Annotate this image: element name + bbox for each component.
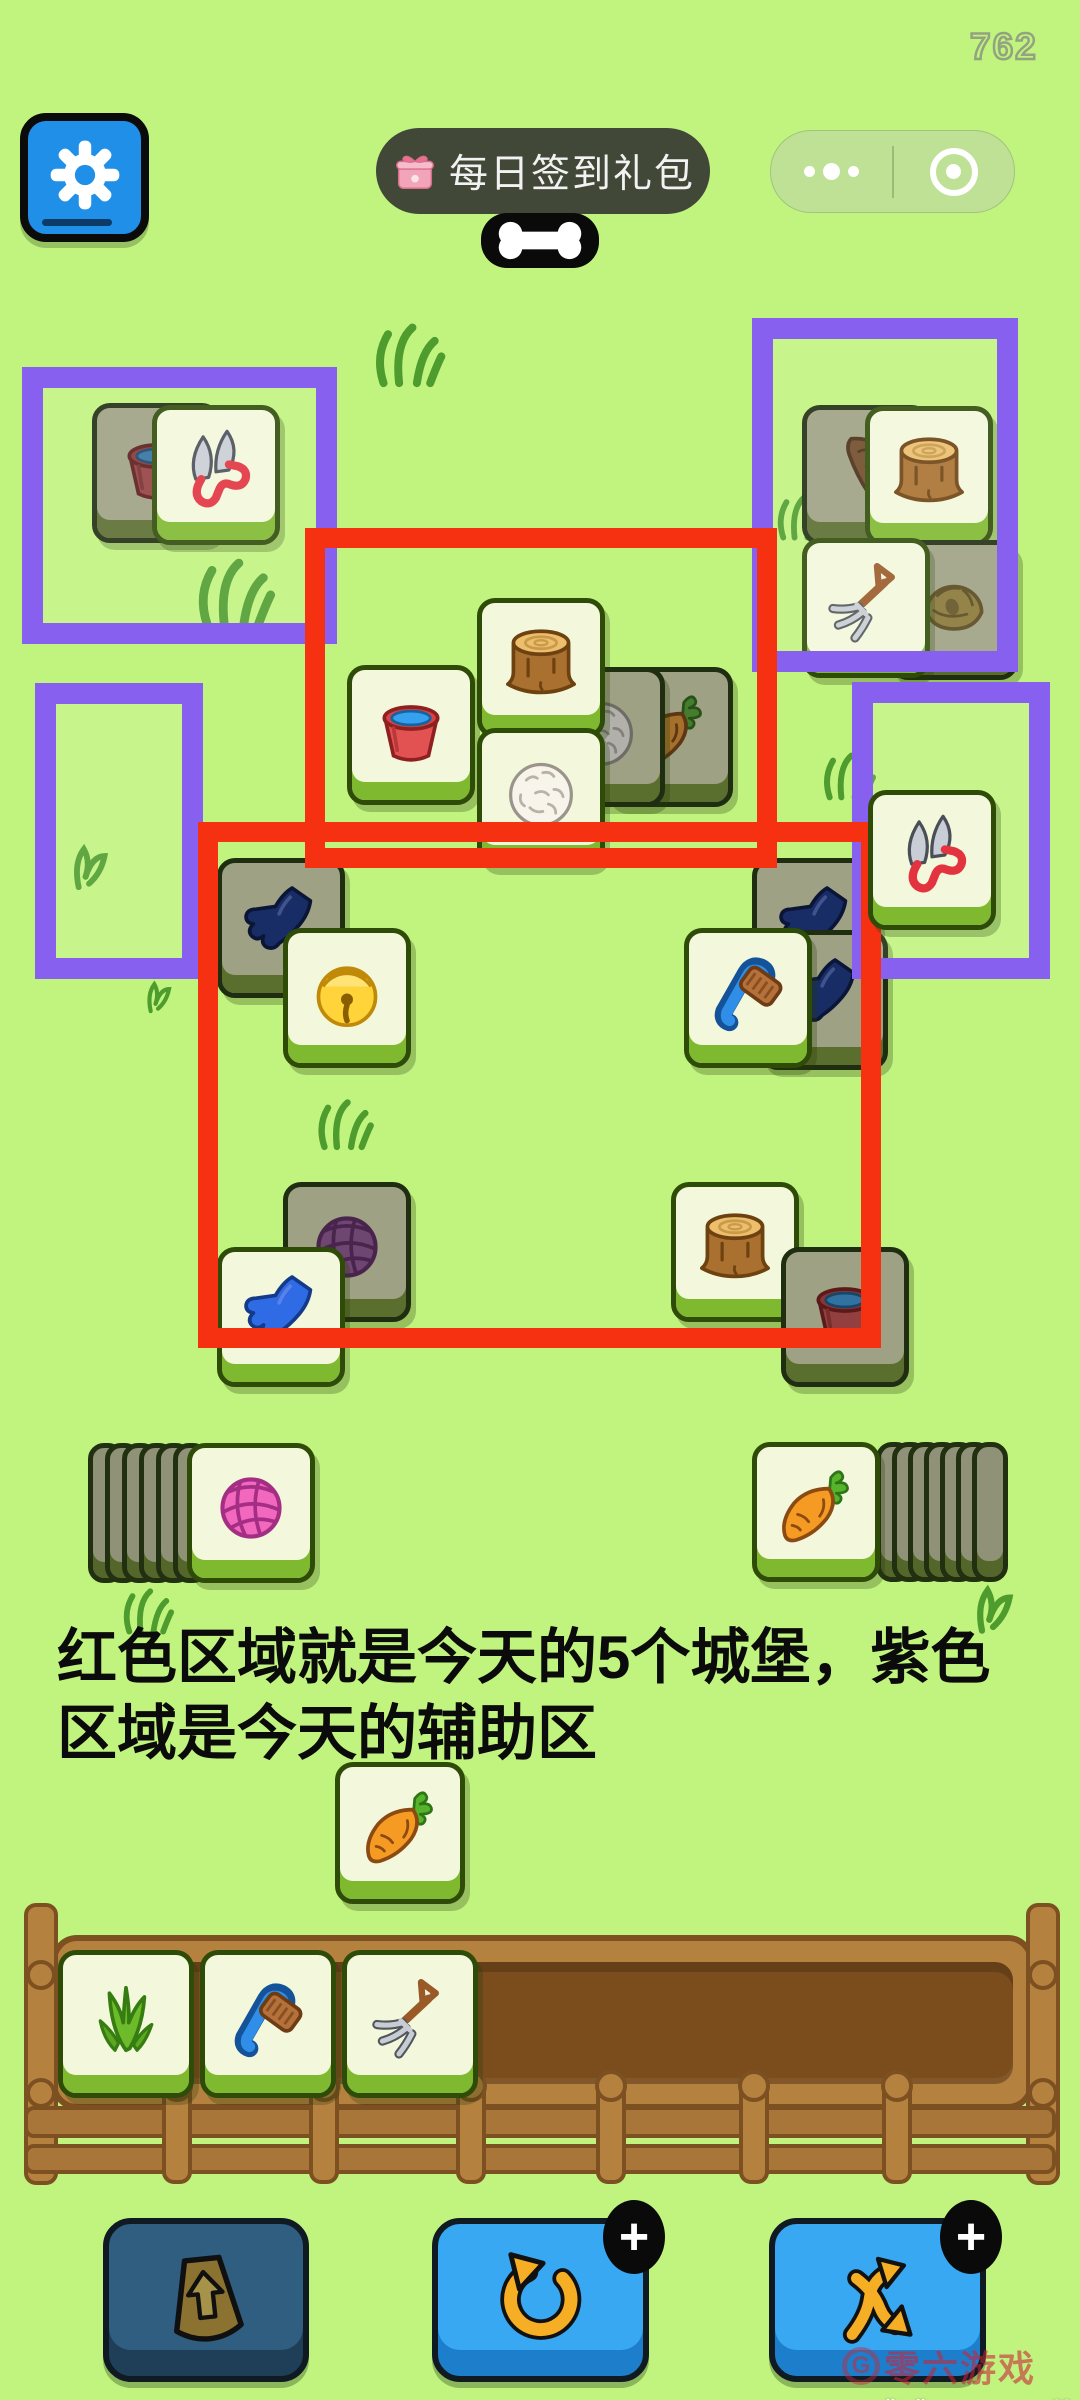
tile-yarn-pink[interactable] — [187, 1443, 315, 1583]
gear-icon — [46, 136, 124, 219]
score-counter: 762 — [970, 26, 1038, 68]
fence-post-knob — [1028, 2078, 1058, 2108]
red-castle-zone-1 — [305, 528, 777, 868]
tile-carrot[interactable] — [335, 1762, 465, 1904]
watermark-brand: G 零六游戏 — [842, 2340, 1080, 2392]
settings-button-shine — [42, 219, 112, 226]
fence-post-knob — [26, 2078, 56, 2108]
caption-line-2: 区域是今天的辅助区 — [57, 1696, 1017, 1772]
fence-post-knob — [1028, 1960, 1058, 1990]
fence-post-knob — [595, 2070, 627, 2102]
game-screen: 每日签到礼包 762 红色区域就是今天的5个城堡，紫色 区域是今天的辅助区 ++… — [0, 0, 1080, 2400]
bag-button[interactable] — [103, 2218, 309, 2382]
watermark: G 零六游戏 www.lingliuyx.com www.06zyx.com — [842, 2340, 1080, 2400]
shuffle-icon — [824, 2246, 932, 2354]
more-dots-icon — [804, 163, 859, 180]
exit-button[interactable] — [894, 131, 1015, 212]
tile-grass[interactable] — [58, 1950, 194, 2098]
plus-badge[interactable]: + — [940, 2200, 1002, 2274]
tile-shears[interactable] — [868, 790, 996, 930]
circle-dot-icon — [930, 148, 978, 196]
bag-icon — [152, 2246, 260, 2354]
settings-button[interactable] — [20, 113, 149, 242]
gift-icon — [391, 147, 439, 195]
watermark-url-1: www.lingliuyx.com — [842, 2396, 994, 2400]
grass-tuft-icon — [368, 312, 448, 397]
purple-helper-zone-3 — [35, 683, 203, 979]
watermark-brand-text: 零六游戏 — [884, 2340, 1036, 2392]
fence-post — [24, 1903, 58, 2185]
more-button[interactable] — [771, 131, 892, 212]
fence-post-knob — [26, 1960, 56, 1990]
grass-sprout-icon — [136, 972, 180, 1021]
plus-badge[interactable]: + — [603, 2200, 665, 2274]
caption-text: 红色区域就是今天的5个城堡，紫色 区域是今天的辅助区 — [57, 1620, 1017, 1772]
wechat-capsule — [770, 130, 1015, 213]
stack-card-back — [972, 1442, 1008, 1582]
purple-helper-zone-1 — [22, 367, 337, 644]
fence-post-knob — [738, 2070, 770, 2102]
watermark-urls: www.lingliuyx.com www.06zyx.com — [842, 2396, 1080, 2400]
tile-carrot[interactable] — [752, 1442, 880, 1582]
red-castle-zone-2 — [198, 822, 881, 1348]
caption-line-1: 红色区域就是今天的5个城堡，紫色 — [57, 1620, 1017, 1696]
undo-icon — [487, 2246, 595, 2354]
purple-helper-zone-2 — [752, 318, 1018, 672]
fence-post-knob — [881, 2070, 913, 2102]
daily-signin-pill[interactable]: 每日签到礼包 — [376, 128, 710, 214]
bone-icon — [481, 213, 599, 268]
fence-post — [1026, 1903, 1060, 2185]
tile-fork[interactable] — [342, 1950, 478, 2098]
watermark-url-2: www.06zyx.com — [1008, 2396, 1080, 2400]
watermark-logo-icon: G — [842, 2347, 880, 2385]
tile-brush[interactable] — [200, 1950, 336, 2098]
daily-signin-label: 每日签到礼包 — [449, 143, 695, 199]
